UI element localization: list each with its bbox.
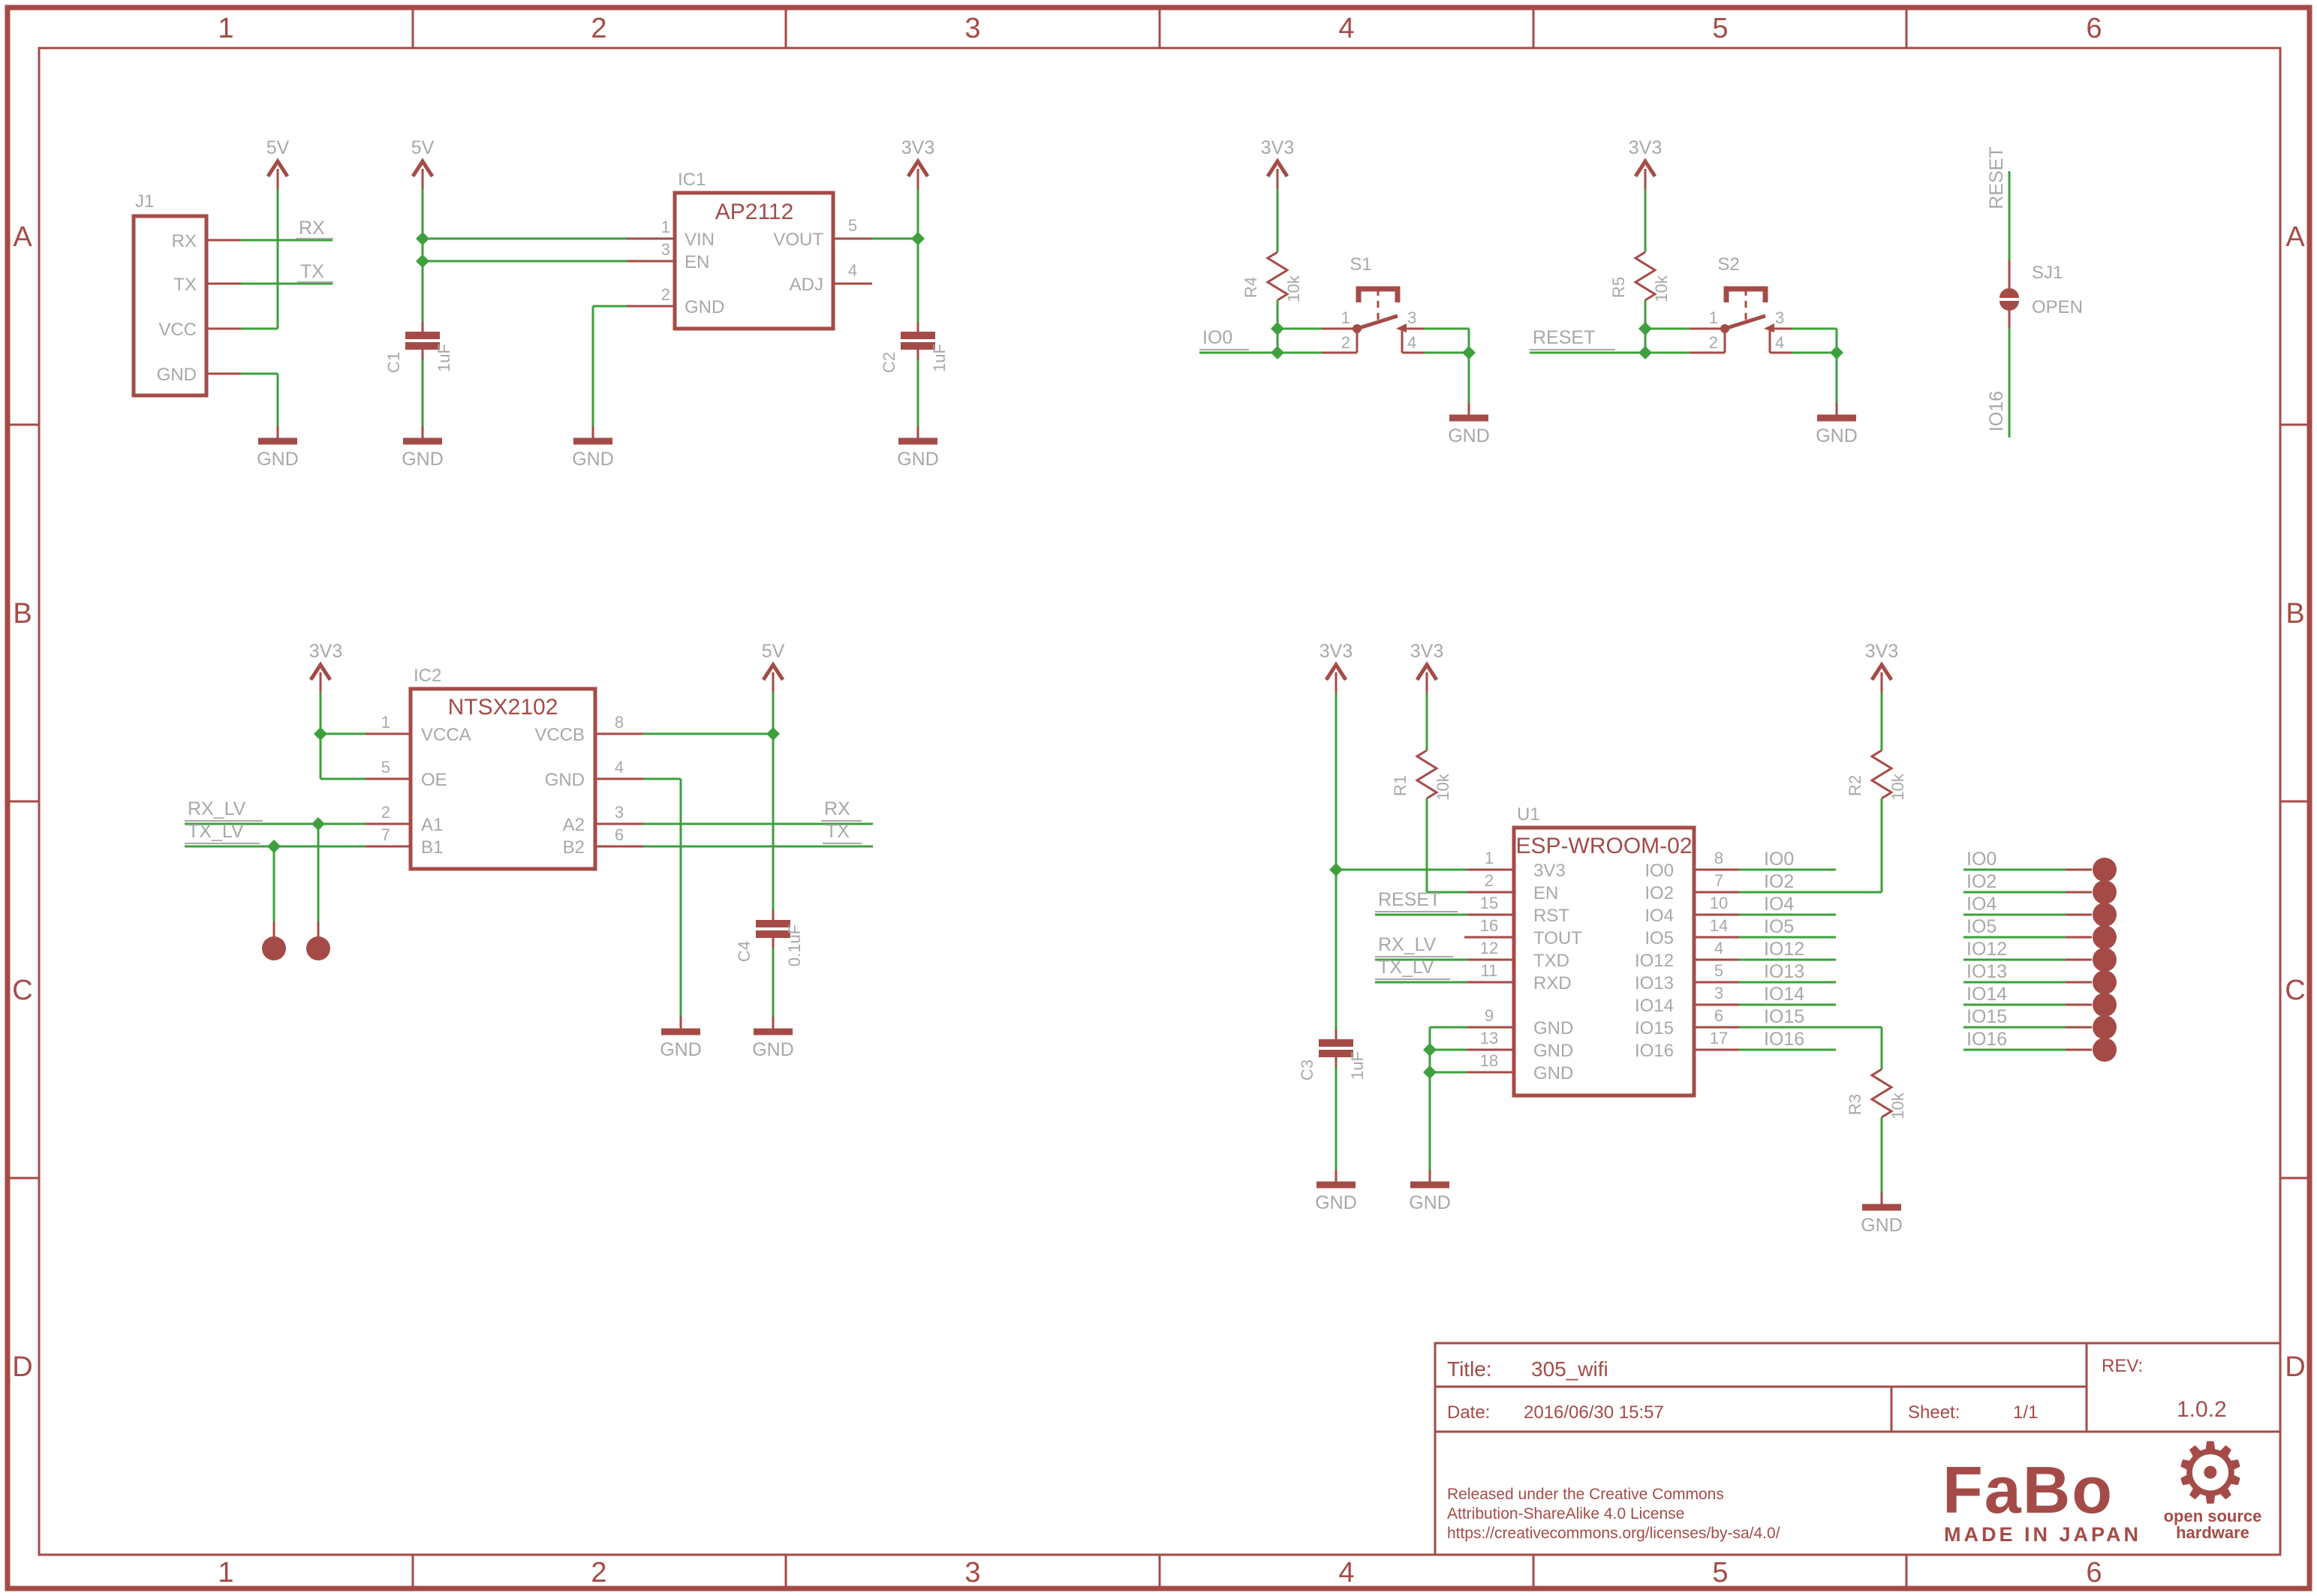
net-label-3v3: 3V3	[1319, 641, 1353, 662]
ic1-ref: IC1	[678, 170, 706, 190]
title-label: Title:	[1447, 1357, 1492, 1381]
solder-jumper-sj1: RESET IO16 SJ1 OPEN	[1986, 146, 2083, 437]
frame-col-label: 4	[1338, 1557, 1354, 1588]
ic2-pin-name: VCCA	[421, 725, 471, 745]
header-pad	[2093, 1038, 2117, 1062]
u1-pin-num: 18	[1480, 1051, 1498, 1070]
gnd-symbol	[1817, 403, 1856, 418]
io-header-section: IO0 IO2 IO4 IO5 IO12 IO13 IO14 IO15 IO16	[1963, 849, 2117, 1062]
net-label-5v: 5V	[411, 137, 435, 158]
net-label-5v: 5V	[266, 137, 290, 158]
gnd-symbol	[573, 426, 612, 441]
gnd-symbol	[1410, 1170, 1449, 1185]
s2-pin-num: 1	[1709, 308, 1718, 327]
supply-5v-symbol	[413, 161, 432, 189]
r1-value: 10k	[1434, 773, 1452, 800]
ic2-pin-name: A1	[421, 815, 443, 835]
s2-ref: S2	[1717, 254, 1739, 275]
ic2-pin-name: B2	[563, 837, 585, 858]
j1-pin-label: GND	[157, 365, 197, 385]
frame-row-label: A	[2285, 221, 2305, 253]
net-label-rx: RX	[824, 798, 850, 819]
c2-ref: C2	[880, 352, 898, 373]
supply-3v3-symbol	[1635, 161, 1655, 189]
ic1-pin-num: 4	[848, 261, 857, 280]
net-label-gnd: GND	[1448, 425, 1490, 446]
u1-pin-name: IO5	[1644, 928, 1674, 948]
s1-pin-num: 2	[1341, 333, 1350, 352]
u1-pin-name: GND	[1533, 1063, 1573, 1084]
u1-pin-name: GND	[1533, 1041, 1573, 1061]
u1-pin-name: IO14	[1635, 996, 1674, 1016]
supply-3v3-symbol	[311, 665, 330, 693]
gnd-symbol	[1449, 403, 1488, 418]
regulator-section: 5V C1 1uF GND IC1 AP2112 1 3 2 5 4 VIN E…	[384, 137, 949, 470]
connector-j1: J1 RX TX VCC GND RX TX 5V GND	[134, 137, 333, 470]
frame-row-label: C	[2285, 975, 2305, 1006]
supply-5v-symbol	[763, 665, 783, 693]
r4-ref: R4	[1241, 277, 1260, 298]
r2-ref: R2	[1846, 775, 1864, 796]
junction	[416, 254, 429, 268]
header-label: IO5	[1966, 916, 1997, 937]
u1-pin-name: IO12	[1635, 951, 1674, 971]
s2-pin-num: 3	[1775, 308, 1784, 327]
ic2-pin-name: B1	[421, 837, 443, 858]
ic1-pin-name: GND	[685, 297, 724, 317]
c4-ref: C4	[735, 941, 754, 962]
u1-pin-name: IO0	[1644, 861, 1674, 881]
u1-pin-name: IO15	[1635, 1018, 1674, 1038]
junction	[416, 232, 429, 245]
oshw-text: hardware	[2176, 1523, 2249, 1542]
ic2-ref: IC2	[414, 666, 441, 686]
net-label-3v3: 3V3	[309, 641, 342, 662]
header-label: IO2	[1966, 871, 1997, 892]
net-label-3v3: 3V3	[1629, 137, 1662, 158]
frame-col-label: 1	[218, 13, 233, 44]
net-label-gnd: GND	[1861, 1215, 1903, 1236]
net-label-3v3: 3V3	[1865, 641, 1898, 662]
r5-value: 10k	[1652, 275, 1671, 302]
gnd-symbol	[403, 426, 442, 441]
junction	[911, 232, 925, 245]
u1-pin-name: 3V3	[1533, 861, 1566, 881]
header-pad	[2093, 948, 2117, 972]
supply-5v-symbol	[268, 161, 287, 189]
frame-col-label: 1	[218, 1557, 233, 1588]
ic1-pin-num: 2	[661, 285, 670, 304]
net-label-io: IO16	[1764, 1029, 1804, 1050]
switch-s1-section: 3V3 R4 10k IO0 S1 1 2 3 4 GND	[1199, 137, 1490, 446]
u1-pin-num: 13	[1480, 1029, 1498, 1047]
ic1-pin-num: 1	[661, 218, 670, 236]
junction	[1423, 1066, 1437, 1079]
net-label-gnd: GND	[660, 1039, 702, 1060]
net-label-io: IO0	[1764, 849, 1794, 870]
test-pad	[306, 936, 330, 960]
c2-value: 1uF	[930, 344, 949, 372]
frame-row-label: D	[2285, 1351, 2305, 1383]
junction	[314, 727, 327, 741]
license-line: Released under the Creative Commons	[1447, 1486, 1724, 1503]
ic1-pin-name: EN	[685, 252, 709, 272]
ic1-pin-name: VIN	[685, 230, 715, 250]
header-label: IO15	[1966, 1006, 2007, 1027]
u1-pin-num: 14	[1710, 916, 1728, 935]
c4-value: 0.1uF	[785, 924, 804, 966]
net-label-tx: TX	[826, 821, 850, 842]
ic2-pin-name: VCCB	[534, 725, 585, 745]
ic2-value: NTSX2102	[448, 695, 558, 720]
header-pad	[2093, 1015, 2117, 1039]
net-label-gnd: GND	[257, 449, 299, 470]
ic2-pin-num: 6	[615, 825, 624, 844]
net-label-gnd: GND	[1409, 1192, 1451, 1213]
u1-pin-num: 7	[1714, 871, 1723, 890]
net-label-gnd: GND	[572, 449, 614, 470]
fabo-logo: FaBo	[1942, 1453, 2114, 1527]
junction	[1271, 346, 1284, 359]
ic1-pin-name: ADJ	[790, 275, 823, 295]
u1-pin-num: 3	[1714, 984, 1723, 1002]
made-in-japan-text: MADE IN JAPAN	[1944, 1523, 2141, 1546]
ic1-value: AP2112	[715, 200, 794, 224]
c3-ref: C3	[1298, 1059, 1316, 1081]
frame-row-label: B	[13, 598, 32, 630]
s1-pin-num: 1	[1341, 308, 1350, 327]
license-line: https://creativecommons.org/licenses/by-…	[1447, 1525, 1780, 1542]
schematic-canvas: 1 2 3 4 5 6 1 2 3 4 5 6 A B C D A B C D …	[0, 0, 2317, 1596]
ic1-pin-num: 5	[848, 216, 857, 235]
net-label-gnd: GND	[1315, 1192, 1357, 1213]
frame-row-label: B	[2285, 598, 2304, 630]
frame-row-label: A	[13, 221, 32, 253]
net-label-io: IO12	[1764, 939, 1804, 960]
j1-pin-label: VCC	[158, 320, 197, 340]
header-label: IO12	[1966, 939, 2007, 960]
net-label-io: IO13	[1764, 961, 1804, 982]
u1-pin-name: EN	[1533, 883, 1558, 903]
u1-pin-name: RXD	[1533, 973, 1572, 993]
s2-pin-num: 2	[1709, 333, 1718, 352]
net-label-io: IO2	[1764, 871, 1794, 892]
schematic-page: 1 2 3 4 5 6 1 2 3 4 5 6 A B C D A B C D …	[0, 0, 2317, 1596]
header-pad	[2093, 858, 2117, 882]
ic2-pin-name: GND	[545, 770, 585, 790]
sj1-ref: SJ1	[2032, 263, 2063, 283]
net-label-gnd: GND	[897, 449, 939, 470]
net-label-io0: IO0	[1202, 327, 1232, 348]
header-pad	[2093, 903, 2117, 927]
net-label-rx: RX	[299, 218, 325, 239]
gnd-symbol	[661, 1017, 700, 1032]
esp-module-section: 3V3 C3 1uF GND 3V3 R1 10k RESET RX_LV TX…	[1298, 641, 1907, 1236]
title-block: Title: 305_wifi Date: 2016/06/30 15:57 S…	[1435, 1343, 2280, 1555]
net-label-rx-lv: RX_LV	[1378, 934, 1437, 955]
frame-col-label: 2	[591, 13, 606, 44]
u1-pin-num: 11	[1481, 961, 1498, 980]
gnd-symbol	[258, 426, 297, 441]
test-pad	[262, 936, 286, 960]
net-label-gnd: GND	[752, 1039, 794, 1060]
header-label: IO13	[1966, 961, 2007, 982]
net-label-tx-lv: TX_LV	[1378, 957, 1434, 978]
u1-pin-num: 9	[1485, 1006, 1494, 1025]
sj1-pad-bottom	[2000, 301, 2019, 311]
net-label-io: IO4	[1764, 894, 1794, 915]
u1-pin-num: 15	[1480, 894, 1498, 912]
level-shifter-section: 3V3 RX_LV TX_LV IC2 NTSX2102 1 5 2 7 8 4…	[185, 641, 873, 1060]
r3-ref: R3	[1846, 1094, 1864, 1115]
j1-ref: J1	[135, 191, 154, 212]
junction	[766, 727, 780, 741]
u1-pin-name: GND	[1533, 1018, 1573, 1038]
junction	[1329, 863, 1343, 876]
supply-3v3-symbol	[1872, 665, 1891, 693]
frame-col-label: 4	[1338, 13, 1354, 44]
date-label: Date:	[1447, 1402, 1490, 1423]
net-label-reset-vertical: RESET	[1986, 146, 2007, 209]
net-label-3v3: 3V3	[1410, 641, 1443, 662]
net-label-tx: TX	[300, 261, 324, 282]
u1-pin-name: IO2	[1644, 883, 1674, 903]
frame-col-label: 5	[1712, 13, 1728, 44]
sj1-pad-top	[2000, 288, 2019, 298]
s1-pin-num: 4	[1407, 333, 1416, 352]
r3-value: 10k	[1888, 1092, 1907, 1119]
u1-pin-name: IO13	[1635, 973, 1674, 993]
s2-pin-num: 4	[1775, 333, 1784, 352]
frame-row-label: C	[12, 975, 32, 1006]
net-label-3v3: 3V3	[901, 137, 934, 158]
frame-col-label: 6	[2086, 13, 2102, 44]
r4-value: 10k	[1284, 275, 1303, 302]
title-value: 305_wifi	[1531, 1357, 1608, 1381]
header-label: IO16	[1966, 1029, 2007, 1050]
u1-pin-num: 17	[1710, 1029, 1728, 1047]
ic2-pin-num: 4	[615, 758, 624, 777]
sj1-value: OPEN	[2032, 297, 2083, 317]
sheet-label: Sheet:	[1908, 1402, 1960, 1423]
junction	[1830, 346, 1843, 359]
supply-3v3-symbol	[1268, 161, 1287, 189]
net-label-io16-vertical: IO16	[1986, 391, 2007, 431]
header-pad	[2093, 925, 2117, 949]
r1-ref: R1	[1391, 775, 1410, 796]
u1-pin-name: IO4	[1644, 906, 1674, 926]
rev-value: 1.0.2	[2177, 1397, 2227, 1422]
r2-value: 10k	[1888, 773, 1907, 800]
c3-value: 1uF	[1348, 1051, 1367, 1080]
frame-col-label: 2	[591, 1557, 606, 1588]
switch-s2-section: 3V3 R5 10k RESET S2 1 2 3 4 GND	[1530, 137, 1858, 446]
gnd-symbol	[1862, 1192, 1901, 1207]
header-label: IO0	[1966, 849, 1997, 870]
u1-value: ESP-WROOM-02	[1515, 834, 1692, 858]
ic2-pin-num: 7	[381, 825, 390, 844]
header-pad	[2093, 880, 2117, 904]
u1-pin-num: 8	[1714, 849, 1723, 867]
u1-pin-num: 16	[1480, 916, 1498, 935]
u1-pin-num: 2	[1485, 871, 1494, 890]
ic2-pin-name: A2	[563, 815, 585, 835]
net-label-io: IO5	[1764, 916, 1794, 937]
supply-3v3-symbol	[1326, 665, 1346, 693]
frame-col-label: 3	[964, 13, 980, 44]
header-pad	[2093, 970, 2117, 994]
u1-pin-num: 5	[1714, 961, 1723, 980]
net-label-rx-lv: RX_LV	[188, 798, 246, 819]
net-label-gnd: GND	[1816, 425, 1858, 446]
net-label-io: IO15	[1764, 1006, 1804, 1027]
s1-ref: S1	[1350, 254, 1371, 275]
net-label-reset: RESET	[1378, 889, 1440, 910]
j1-pin-label: TX	[173, 275, 197, 295]
frame-col-label: 5	[1712, 1557, 1728, 1588]
header-label: IO4	[1966, 894, 1997, 915]
u1-pin-num: 4	[1714, 939, 1723, 957]
u1-pin-name: RST	[1533, 906, 1569, 926]
supply-3v3-symbol	[1417, 665, 1437, 693]
license-line: Attribution-ShareAlike 4.0 License	[1447, 1505, 1684, 1522]
header-pad	[2093, 993, 2117, 1017]
frame-row-label: D	[12, 1351, 32, 1383]
net-label-tx-lv: TX_LV	[188, 821, 244, 842]
junction	[1638, 346, 1652, 359]
frame-col-label: 6	[2086, 1557, 2102, 1588]
drawing-frame: 1 2 3 4 5 6 1 2 3 4 5 6 A B C D A B C D	[8, 8, 2309, 1588]
u1-pin-num: 6	[1714, 1006, 1723, 1025]
u1-pin-num: 10	[1710, 894, 1728, 912]
c1-value: 1uF	[435, 344, 453, 372]
ic2-pin-num: 5	[381, 758, 390, 777]
ic2-pin-num: 1	[381, 713, 390, 732]
junction	[1271, 322, 1284, 335]
net-label-5v: 5V	[762, 641, 785, 662]
frame-inner-border	[39, 48, 2280, 1555]
junction	[1638, 322, 1652, 335]
u1-pin-num: 1	[1485, 849, 1494, 867]
net-label-io: IO14	[1764, 984, 1804, 1005]
u1-pin-name: IO16	[1635, 1041, 1674, 1061]
junction	[1462, 346, 1476, 359]
net-label-3v3: 3V3	[1261, 137, 1294, 158]
u1-ref: U1	[1517, 804, 1540, 825]
ic2-pin-num: 3	[615, 803, 624, 822]
gnd-symbol	[1316, 1170, 1356, 1185]
frame-col-label: 3	[964, 1557, 980, 1588]
ic1-pin-num: 3	[661, 240, 670, 259]
rev-label: REV:	[2102, 1356, 2143, 1376]
frame-outer-border	[8, 8, 2309, 1588]
sheet-value: 1/1	[2013, 1402, 2038, 1423]
s1-pin-num: 3	[1407, 308, 1416, 327]
gnd-symbol	[898, 426, 937, 441]
net-label-reset: RESET	[1533, 327, 1595, 348]
ic1-pin-name: VOUT	[773, 230, 823, 250]
u1-pin-num: 12	[1480, 939, 1498, 957]
net-label-gnd: GND	[402, 449, 444, 470]
date-value: 2016/06/30 15:57	[1524, 1402, 1664, 1423]
u1-pin-name: TXD	[1533, 951, 1569, 971]
gnd-symbol	[754, 1017, 793, 1032]
supply-3v3-symbol	[908, 161, 928, 189]
ic2-pin-num: 2	[381, 803, 390, 822]
ic2-pin-num: 8	[615, 713, 624, 732]
u1-pin-name: TOUT	[1533, 928, 1582, 948]
c1-ref: C1	[384, 352, 403, 373]
ic2-pin-name: OE	[421, 770, 447, 790]
junction	[1423, 1043, 1437, 1056]
r5-ref: R5	[1609, 277, 1628, 298]
j1-pin-label: RX	[172, 231, 197, 251]
header-label: IO14	[1966, 984, 2007, 1005]
